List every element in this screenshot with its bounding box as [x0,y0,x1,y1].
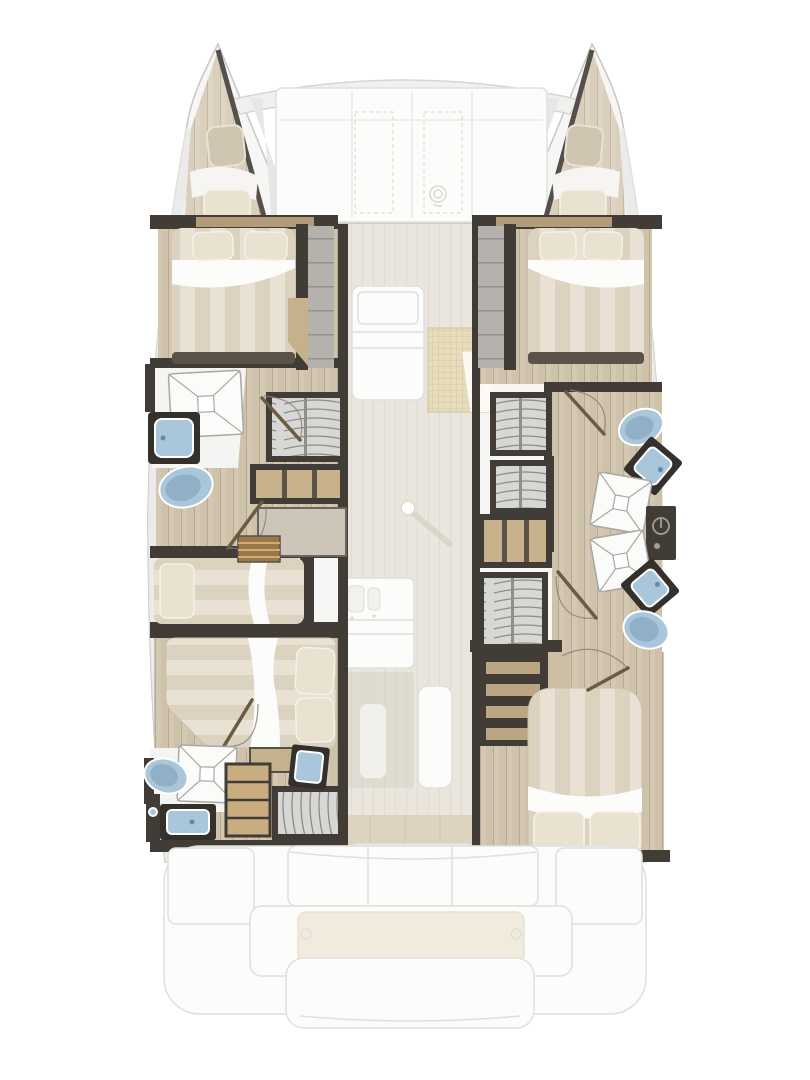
port-stair-treads [308,226,334,368]
locker-handle [149,808,157,816]
starboard-hull-interior [470,215,683,862]
settee [352,286,424,400]
stb-shelf-unit [478,514,552,568]
port-aft-locker [146,794,160,842]
stern-cockpit [164,846,646,1028]
port-forward-cabin-bed [172,228,295,364]
port-aft-washbasin [160,804,216,840]
stb-forward-cabin-bed [528,228,644,364]
stb-aft-cabin-bed [528,688,642,850]
stb-wardrobe-lower [490,460,552,514]
stb-bathroom-bulkhead [544,382,662,392]
pillow [245,231,288,260]
galley-counter-inset [360,704,386,778]
stb-corridor-wardrobe [478,572,548,650]
port-single-berth [154,558,304,624]
stb-fwd-shower [590,472,653,535]
pillow [160,564,194,618]
foredeck [250,88,560,224]
pillow [534,812,584,850]
teak-pad [298,912,524,962]
port-fwd-bed-foot [172,352,295,364]
pillow [540,231,577,260]
pillow [584,231,623,260]
cockpit-bench [288,846,538,906]
port-forepeak-hatch [206,124,246,168]
galley-sink-unit [342,578,414,668]
floorplan-canvas [0,0,810,1080]
port-fwd-washbasin [148,412,200,464]
catamaran-floorplan [0,0,810,1080]
aft-deck-strip [348,815,472,845]
port-aft-wardrobe [272,786,344,840]
pillow [590,812,640,850]
faucet [161,436,166,441]
wardrobe-divider [304,398,307,456]
pillow [295,697,335,742]
port-aft-vanity-basin [288,744,330,790]
port-wardrobe [266,392,346,462]
stb-technical-locker [646,506,676,560]
port-drawer-unit [226,764,270,836]
faucet [190,820,195,825]
pillow [193,231,234,260]
stb-wardrobe-upper [490,392,552,456]
port-berth-bulkhead-aft [150,622,348,638]
stb-stair-treads [478,226,504,368]
pillow [295,647,335,695]
port-aft-cabin-bed [166,638,336,748]
port-cockpit-locker [168,848,254,924]
port-hullside-wall-1 [145,364,155,412]
island-unit [418,686,452,788]
stb-fwd-bed-foot [528,352,644,364]
port-hull-interior [140,215,348,862]
starboard-forepeak-hatch [564,124,604,168]
port-shelf-unit [250,464,346,504]
port-entry-steps [238,536,280,562]
stb-stair-wall [504,224,516,370]
